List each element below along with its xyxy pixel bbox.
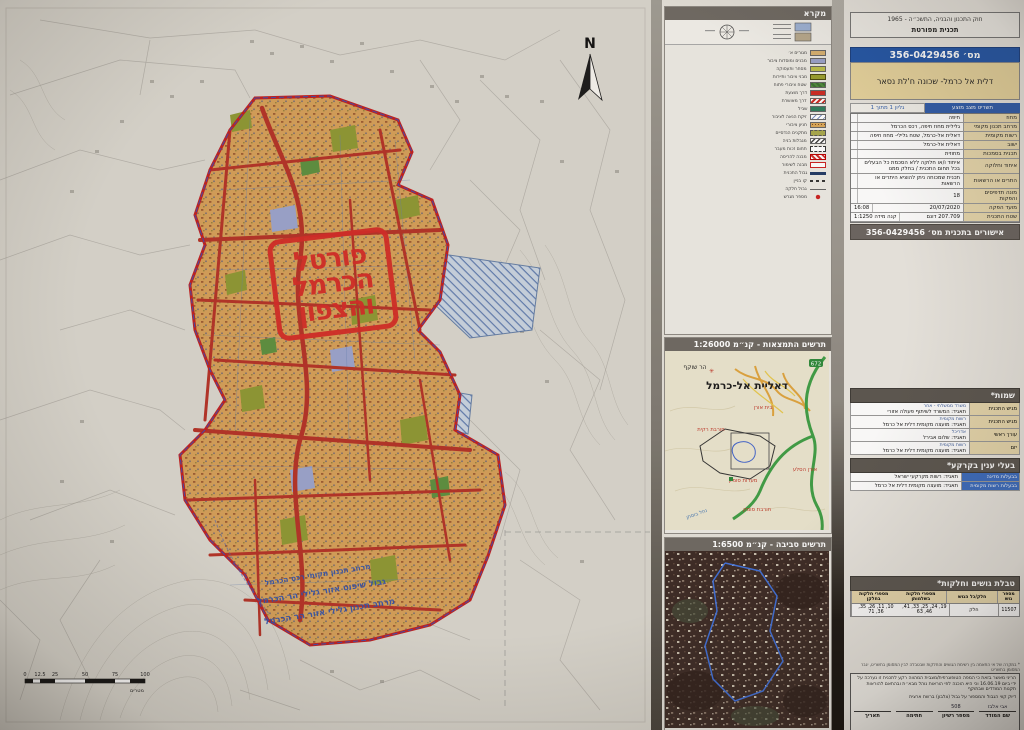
scale-tick: 50 (82, 672, 88, 678)
details-extra (851, 132, 858, 140)
law-title: חוק התכנון והבניה, התשכ״ה - 1965 (853, 16, 1017, 23)
legend-item-label: מבנה לשימור (782, 162, 807, 167)
legend-item-label: מספר מגרש (784, 194, 807, 199)
names-value-name: תאגיד: מועצה מקומית דלית אל כרמל (854, 422, 966, 428)
legend-item: דרך מאושרת (665, 97, 831, 105)
parcels-header-row: מספר גושחלק/כל הגושמספרי חלקות בשלמותןמס… (850, 591, 1020, 604)
legend-swatch (810, 138, 826, 144)
details-row: שטח התכנית 207.709 דונם קנה מידה 1:1250 (851, 213, 1019, 222)
table-mismatch-note: * במקרה של אי התאמה בין רשימת הגושים והח… (850, 662, 1020, 672)
legend-item: קו בניין (665, 177, 831, 185)
details-row: מרחב תכנון מקומי גלילית מחוז חיפה, רכס ה… (851, 123, 1019, 132)
scale-unit-label: מטרים (130, 688, 144, 694)
signature-column: 508 מספר רשיון (938, 704, 975, 719)
site-label: חורבת סומק (743, 507, 771, 513)
legend-swatch (810, 154, 826, 160)
signature-row: אבי אלבז שם המודד 508 מספר רשיון חתימה ת… (854, 704, 1016, 719)
plan-details-table: מחוז חיפה מרחב תכנון מקומי גלילית מחוז ח… (850, 113, 1020, 223)
legend-item-label: גבול התכנית (783, 170, 807, 175)
landowners-role: בבעלות מדינה (961, 473, 1019, 481)
names-role: יזם (969, 442, 1019, 454)
parcels-header-cell: מספרי חלקות בשלמותן (895, 591, 946, 603)
signature-label: שם המודד (979, 713, 1016, 719)
surveyor-certification-box: הריני מאשר בזאת כי המפה הטופוגרפית/מצבית… (850, 673, 1020, 730)
parcels-cell: חלק (949, 604, 998, 616)
legend-item-label: שביל (798, 106, 807, 111)
footer-section: * במקרה של אי התאמה בין רשימת הגושים והח… (850, 662, 1020, 730)
parcels-section: טבלת גושים וחלקות* מספר גושחלק/כל הגושמס… (850, 576, 1020, 617)
site-marker (729, 477, 733, 481)
legend-item-label: מסחר ותעסוקה (777, 66, 807, 71)
details-row: התרים או הרשאות תכנית שמכוחה ניתן להוציא… (851, 174, 1019, 189)
legend-item: מבנה להריסה (665, 153, 831, 161)
legend-section: מקרא (664, 6, 832, 335)
details-label: ישוב (963, 141, 1019, 149)
law-header-box: חוק התכנון והבניה, התשכ״ה - 1965 תכנית מ… (850, 12, 1020, 38)
details-value: מחוזית (858, 150, 963, 158)
sheet-type-bar: תשריט מצב מוצע גליון 1 מתוך 1 (850, 103, 1020, 113)
legend-items: מגורים א׳ מבנים ומוסדות ציבור מסחר ותעסו… (665, 45, 831, 201)
details-value: גלילית מחוז חיפה, רכס הכרמל (858, 123, 963, 131)
legend-item: מסחר ותעסוקה (665, 65, 831, 73)
sheet-edge-shadow (651, 0, 662, 730)
location-inset-section: תרשים התמצאות - קנ״מ 1:26000 (664, 337, 832, 534)
legend-item: מבנים ומוסדות ציבור (665, 57, 831, 65)
inset-mount-label: הר שוקף (683, 364, 706, 371)
legend-item: שטח ציבורי פתוח (665, 81, 831, 89)
details-extra (851, 123, 858, 131)
legend-swatch (810, 122, 826, 128)
legend-swatch (810, 106, 826, 112)
names-role: מגיש התכנית (969, 416, 1019, 428)
legend-swatch (810, 189, 826, 190)
landowners-row: בבעלות מדינה תאגיד: רשות מקרקעי ישראל (850, 473, 1020, 482)
names-row: יזם רשות מקומית תאגיד: מועצה מקומית דלית… (850, 442, 1020, 455)
parcels-header-cell: מספרי חלקות בחלקן (851, 591, 895, 603)
scanned-plan-document: מרחב תכנון מקומי רכס הכרמל גבול שיפוט אז… (0, 0, 1024, 730)
details-row: מונה תדפיסים והפקות 18 (851, 189, 1019, 204)
parcels-data-row: 11507חלק19, 24, 25, 33, 41, 46, 6310, 11… (850, 604, 1020, 617)
details-value: דאלית אל-כרמל (858, 141, 963, 149)
mini-map-thumbnails (773, 23, 811, 41)
legend-swatch (810, 58, 826, 64)
legend-swatch (810, 74, 826, 80)
details-value: דאלית אל-כרמל, שטח גלילי- מחוז חיפה (858, 132, 963, 140)
details-extra (851, 150, 858, 158)
environment-inset-title: תרשים סביבה - קנ״מ 1:6500 (665, 538, 831, 551)
landowners-row: בבעלות רשות מקומית תאגיד: מועצה מקומית ד… (850, 482, 1020, 491)
names-section: שמות* מגיש התכנית משרד ממשלתי - אחר תאגי… (850, 388, 1020, 455)
legend-item: דרך מוצעת (665, 89, 831, 97)
details-value: חיפה (858, 114, 963, 122)
details-row: מועד הפקה 20/07/2020 16:08 (851, 204, 1019, 213)
legend-item-label: מבנה להריסה (780, 154, 807, 159)
signature-value: 508 (938, 704, 975, 712)
title-block-column: חוק התכנון והבניה, התשכ״ה - 1965 תכנית מ… (844, 0, 1024, 730)
legend-swatch (810, 50, 826, 56)
site-label: אורן הסלע (793, 467, 818, 473)
legend-item-label: מתקנים הנדסיים (775, 130, 807, 135)
legend-swatch (810, 82, 826, 88)
legend-subheader (665, 20, 831, 45)
legend-item: גבול חלקה (665, 185, 831, 193)
details-label: רשות מקומית (963, 132, 1019, 140)
details-value: תכנית שמכוחה ניתן להוציא היתרים או הרשאו… (858, 174, 963, 188)
landowners-rows: בבעלות מדינה תאגיד: רשות מקרקעי ישראל בב… (850, 473, 1020, 491)
legend-item-label: קו בניין (794, 178, 808, 183)
legend-swatch (810, 114, 826, 120)
names-role: עורך ראשי (969, 429, 1019, 441)
details-extra (851, 189, 858, 203)
legend-swatch (810, 98, 826, 104)
details-label: מועד הפקה (963, 204, 1019, 212)
legend-item-label: מבנים ומוסדות ציבור (768, 58, 807, 63)
details-label: מונה תדפיסים והפקות (963, 189, 1019, 203)
details-extra (851, 141, 858, 149)
plan-name-box: דלית אל כרמל- שכונה ח'לת נסאר (850, 62, 1020, 100)
signature-column: חתימה (896, 704, 933, 719)
scale-tick: 100 (140, 672, 150, 678)
signature-column: תאריך (854, 704, 891, 719)
site-label: בית אורן (754, 405, 773, 411)
details-value: איחוד ו/או חלוקה ללא הסכמת כל הבעלים בכל… (858, 159, 963, 173)
inset-town-label: דאליית אל-כרמל (706, 380, 788, 392)
legend-item-label: זיקת הנאה לציבור (772, 114, 807, 119)
signature-value (854, 704, 891, 712)
legend-item: מבני ציבור ותיירות (665, 73, 831, 81)
signature-value (896, 704, 933, 712)
legend-item: תחום זכות מעבר (665, 145, 831, 153)
legend-item-label: חניון ציבורי (786, 122, 807, 127)
details-row: תכנית בסמכות מחוזית (851, 150, 1019, 159)
parcels-cell: 11507 (998, 604, 1019, 616)
precision-text: דיוק קווי הגבול והמספור על גבול (צלבון) … (854, 695, 1016, 700)
parcels-cell: 19, 24, 25, 33, 41, 46, 63 (900, 604, 949, 616)
landowners-role: בבעלות רשות מקומית (961, 482, 1019, 490)
legend-item: מספר מגרש (665, 193, 831, 201)
legend-title: מקרא (665, 7, 831, 20)
compass-and-thumbnails (665, 20, 829, 44)
certification-text: הריני מאשר בזאת כי המפה הטופוגרפית/מצבית… (854, 676, 1016, 693)
legend-swatch (810, 162, 826, 168)
details-label: שטח התכנית (963, 213, 1019, 221)
details-value: 18 (858, 189, 963, 203)
details-extra (851, 114, 858, 122)
names-row: מגיש התכנית רשות מקומית תאגיד: מועצה מקו… (850, 416, 1020, 429)
legend-item: מגורים א׳ (665, 49, 831, 57)
watermark-stamp: פורטל הכרמל והצפון (266, 226, 400, 342)
details-row: רשות מקומית דאלית אל-כרמל, שטח גלילי- מח… (851, 132, 1019, 141)
legend-item: מבנה לשימור (665, 161, 831, 169)
legend-swatch (810, 180, 826, 182)
details-row: ישוב דאלית אל-כרמל (851, 141, 1019, 150)
parcels-header-cell: חלק/כל הגוש (946, 591, 997, 603)
details-extra (851, 174, 858, 188)
details-label: תכנית בסמכות (963, 150, 1019, 158)
compass-icon (705, 25, 749, 39)
landowners-value: תאגיד: מועצה מקומית דלית אל כרמל (854, 483, 958, 489)
details-label: מרחב תכנון מקומי (963, 123, 1019, 131)
names-title: שמות* (850, 388, 1020, 403)
signature-label: מספר רשיון (938, 713, 975, 719)
details-extra: 16:08 (851, 204, 873, 212)
legend-column: מקרא (662, 0, 832, 730)
star-mark: ✳ (709, 368, 714, 375)
details-label: מחוז (963, 114, 1019, 122)
north-label: N (584, 36, 596, 52)
signature-column: אבי אלבז שם המודד (979, 704, 1016, 719)
landowners-title: בעלי ענין בקרקע* (850, 458, 1020, 473)
details-row: איחוד וחלוקה איחוד ו/או חלוקה ללא הסכמת … (851, 159, 1019, 174)
scale-tick: 25 (52, 672, 58, 678)
legend-item: גבול התכנית (665, 169, 831, 177)
sheet-edge-shadow (832, 0, 844, 730)
signature-label: חתימה (896, 713, 933, 719)
names-value: רשות מקומית תאגיד: מועצה מקומית דלית אל … (851, 442, 969, 454)
legend-item: מתקנים הנדסיים (665, 129, 831, 137)
site-label: חורבת רקית (697, 427, 725, 433)
parcels-cell: 10, 11, 26, 35, 36, 71 (851, 604, 900, 616)
names-value: רשות מקומית תאגיד: מועצה מקומית דלית אל … (851, 416, 969, 428)
scale-tick: 12.5 (34, 672, 45, 678)
legend-item-label: גבול חלקה (786, 186, 807, 191)
details-row: מחוז חיפה (851, 114, 1019, 123)
route-number: 672 (811, 362, 822, 368)
names-value-name: תאגיד: שלום אבירל (854, 435, 966, 441)
legend-item-label: תחום זכות מעבר (775, 146, 807, 151)
parcels-title: טבלת גושים וחלקות* (850, 576, 1020, 591)
legend-item: זיקת הנאה לציבור (665, 113, 831, 121)
details-label: איחוד וחלוקה (963, 159, 1019, 173)
scale-tick: 75 (112, 672, 118, 678)
details-value: 20/07/2020 (873, 204, 963, 212)
names-value: אדריכל תאגיד: שלום אבירל (851, 429, 969, 441)
environment-inset-section: תרשים סביבה - קנ״מ 1:6500 (664, 537, 832, 730)
plan-type: תכנית מפורטת (853, 26, 1017, 34)
location-inset-title: תרשים התמצאות - קנ״מ 1:26000 (665, 338, 831, 351)
legend-item-label: דרך מאושרת (782, 98, 807, 103)
signature-value: אבי אלבז (979, 704, 1016, 712)
names-role: מגיש התכנית (969, 403, 1019, 415)
legend-item-label: מגבלות בניה (783, 138, 807, 143)
scale-tick: 0 (23, 672, 26, 678)
legend-item-label: מבני ציבור ותיירות (773, 74, 807, 79)
parcels-header-cell: מספר גוש (997, 591, 1019, 603)
main-map-sheet: מרחב תכנון מקומי רכס הכרמל גבול שיפוט אז… (0, 0, 652, 730)
details-extra (851, 159, 858, 173)
legend-swatch (810, 172, 826, 175)
legend-swatch (810, 130, 826, 136)
legend-swatch (810, 146, 826, 152)
landowners-section: בעלי ענין בקרקע* בבעלות מדינה תאגיד: רשו… (850, 458, 1020, 491)
names-value: משרד ממשלתי - אחר תאגיד: המשרד לשיתוף פע… (851, 403, 969, 415)
sheet-count-label: גליון 1 מתוך 1 (850, 103, 925, 113)
cadastral-map: מרחב תכנון מקומי רכס הכרמל גבול שיפוט אז… (0, 0, 652, 730)
legend-item-label: דרך מוצעת (785, 90, 807, 95)
aerial-photo (665, 551, 829, 728)
details-extra: קנה מידה 1:1250 (851, 213, 900, 221)
legend-swatch (810, 90, 826, 96)
details-value: 207.709 דונם (900, 213, 963, 221)
approvals-bar: אישורים בתכנית מס׳ 356-0429456 (850, 224, 1020, 240)
landowners-value: תאגיד: רשות מקרקעי ישראל (854, 474, 958, 480)
names-row: מגיש התכנית משרד ממשלתי - אחר תאגיד: המש… (850, 403, 1020, 416)
names-rows: מגיש התכנית משרד ממשלתי - אחר תאגיד: המש… (850, 403, 1020, 455)
names-value-name: תאגיד: מועצה מקומית דלית אל כרמל (854, 448, 966, 454)
signature-label: תאריך (854, 713, 891, 719)
legend-swatch (810, 66, 826, 72)
legend-item-label: שטח ציבורי פתוח (774, 82, 807, 87)
legend-item-label: מגורים א׳ (788, 50, 807, 55)
names-row: עורך ראשי אדריכל תאגיד: שלום אבירל (850, 429, 1020, 442)
sheet-type-label: תשריט מצב מוצע (925, 103, 1020, 113)
location-inset-map: 672 דאליית אל-כרמל הר שוקף ✳ בית אורן חו… (665, 351, 829, 530)
names-value-name: תאגיד: המשרד לשיתוף פעולה אזורי (854, 409, 966, 415)
details-label: התרים או הרשאות (963, 174, 1019, 188)
legend-item: מגבלות בניה (665, 137, 831, 145)
legend-item: שביל (665, 105, 831, 113)
legend-item: חניון ציבורי (665, 121, 831, 129)
legend-swatch (810, 194, 826, 200)
